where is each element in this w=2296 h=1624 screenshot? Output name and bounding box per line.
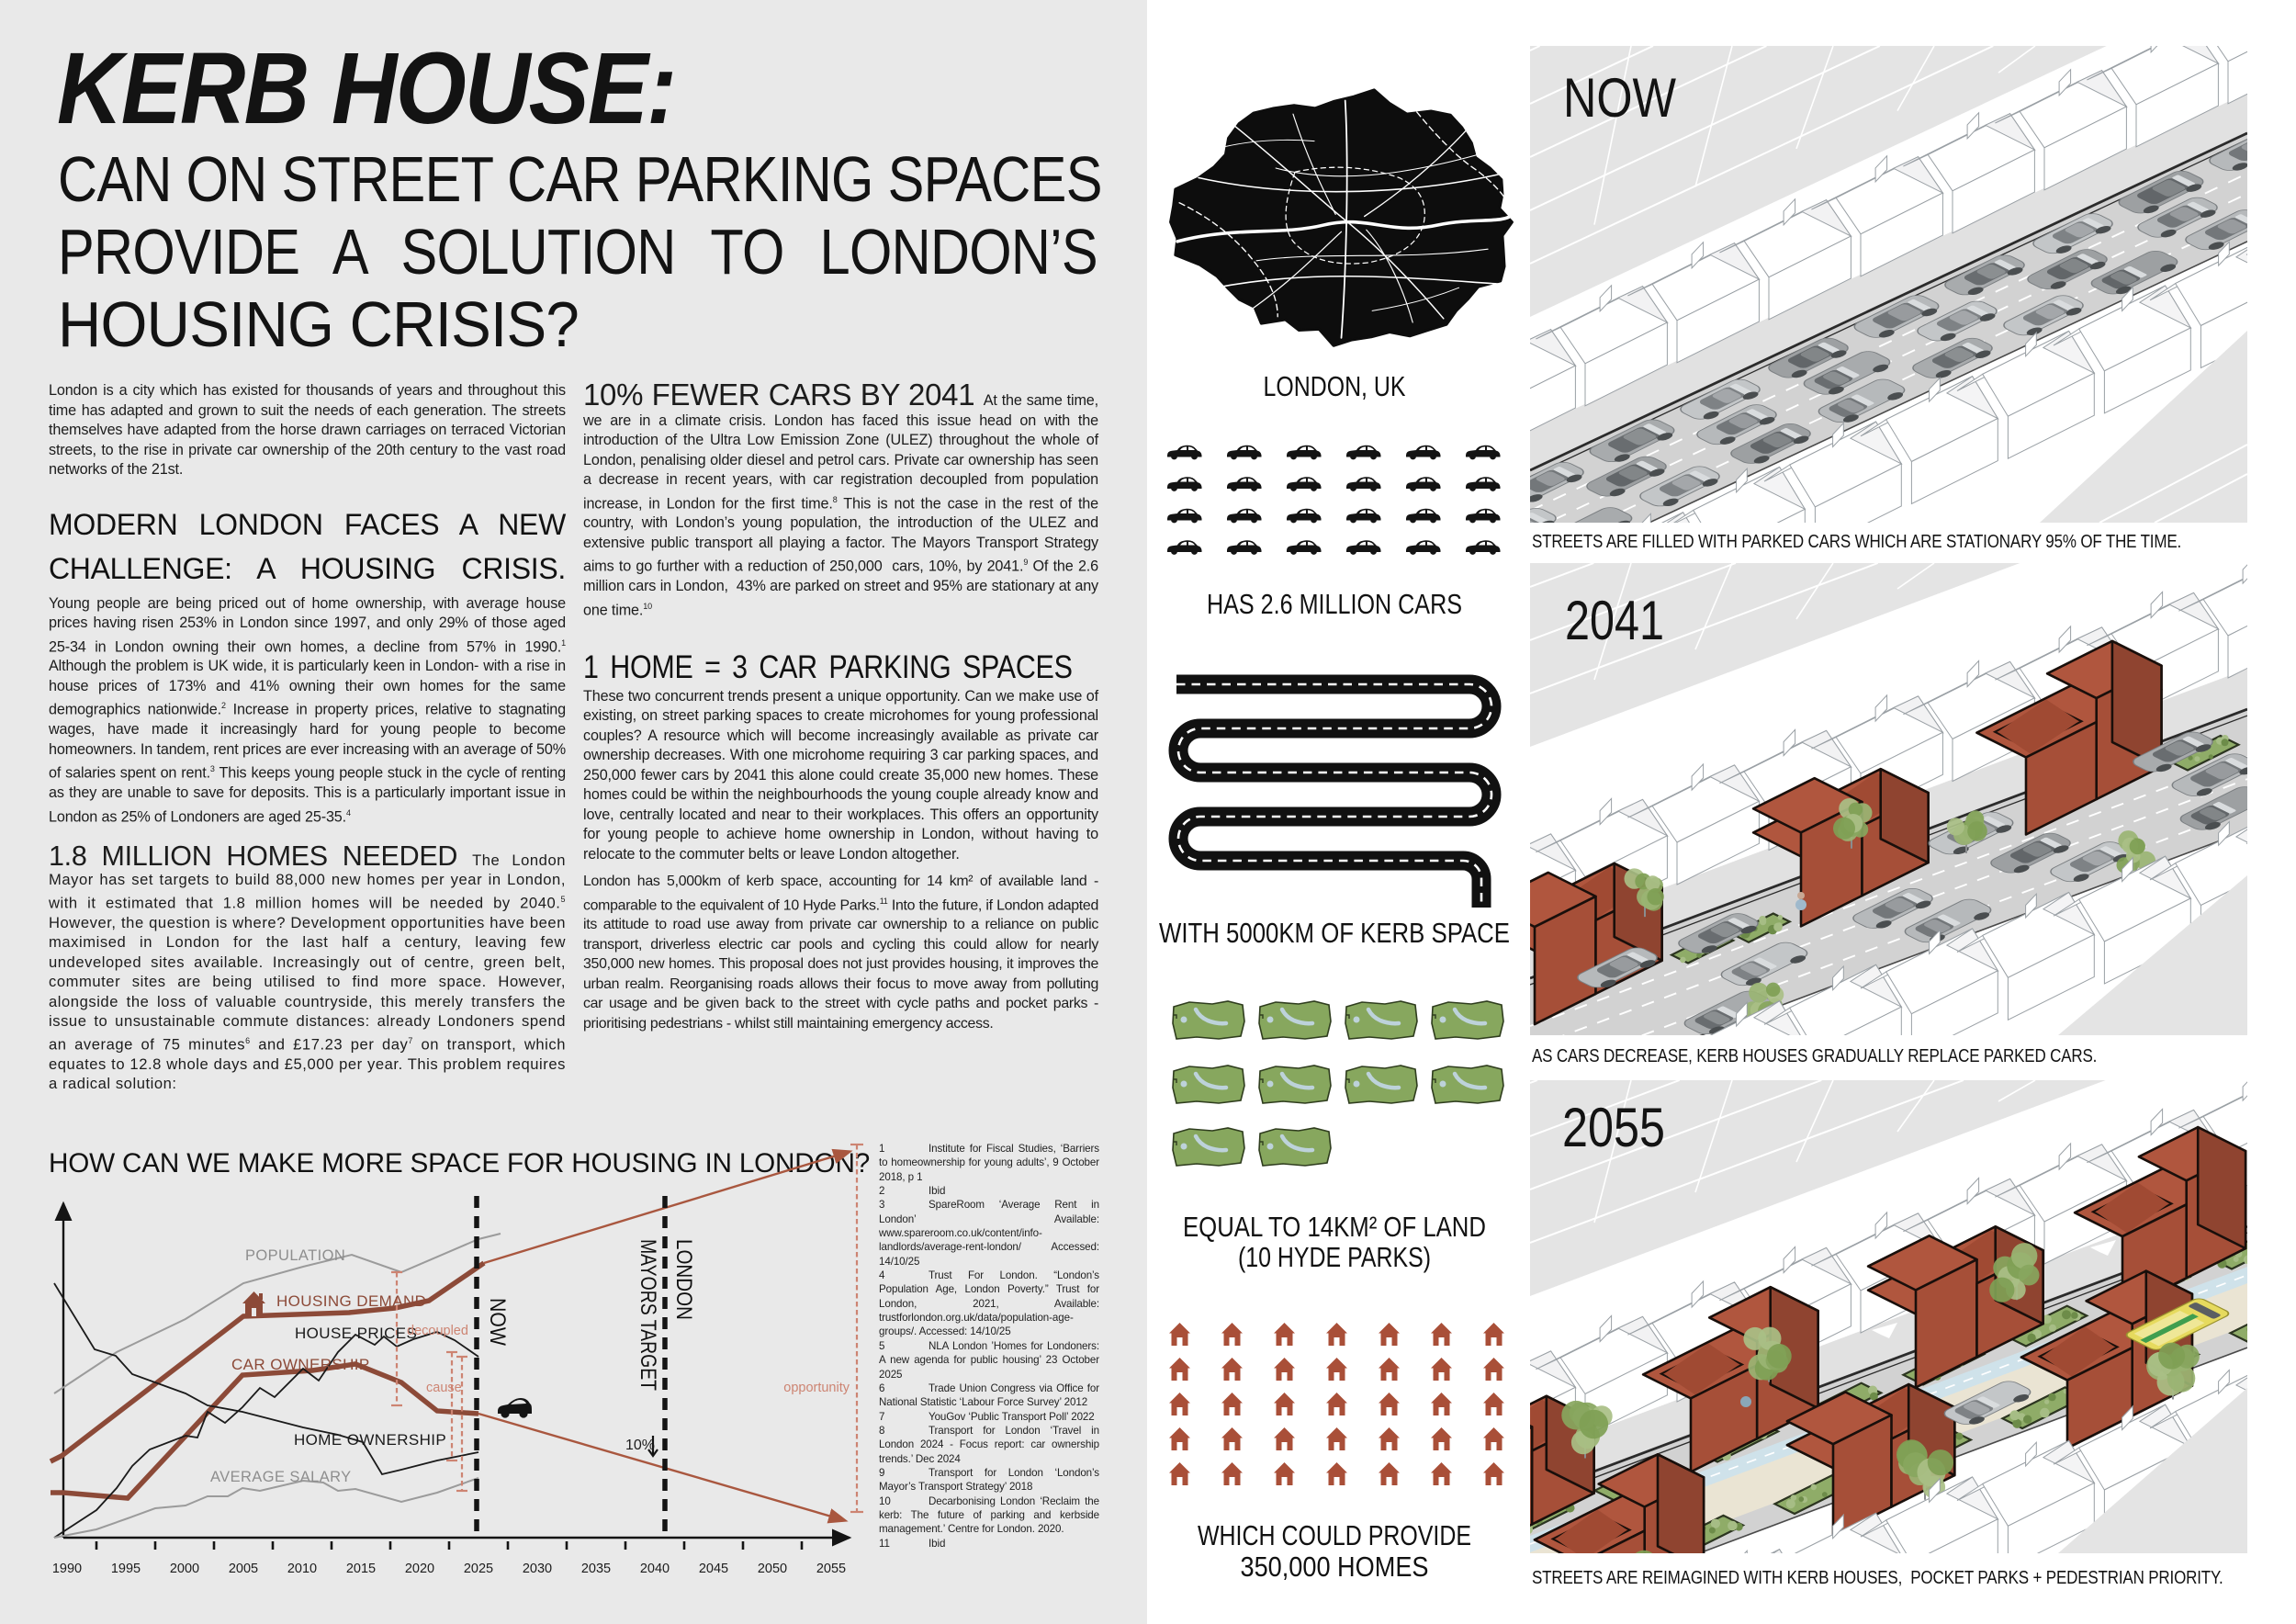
svg-text:2005: 2005 — [229, 1562, 258, 1576]
svg-text:LONDON: LONDON — [671, 1239, 696, 1320]
svg-text:HOUSING DEMAND: HOUSING DEMAND — [276, 1292, 426, 1310]
svg-text:2040: 2040 — [640, 1562, 670, 1576]
svg-text:2041: 2041 — [1565, 590, 1664, 651]
svg-text:POPULATION: POPULATION — [245, 1247, 345, 1264]
svg-text:2055: 2055 — [816, 1562, 846, 1576]
svg-text:2050: 2050 — [758, 1562, 787, 1576]
svg-text:HOME OWNERSHIP: HOME OWNERSHIP — [294, 1431, 446, 1449]
svg-text:decoupled: decoupled — [407, 1324, 468, 1338]
svg-text:HAS 2.6 MILLION CARS: HAS 2.6 MILLION CARS — [1207, 589, 1462, 620]
svg-text:1990: 1990 — [52, 1562, 82, 1576]
svg-text:cause: cause — [426, 1381, 462, 1395]
svg-text:2055: 2055 — [1562, 1097, 1665, 1158]
svg-text:350,000 HOMES: 350,000 HOMES — [1241, 1551, 1429, 1583]
svg-text:LONDON, UK: LONDON, UK — [1264, 371, 1406, 402]
svg-text:MAYORS TARGET: MAYORS TARGET — [636, 1239, 660, 1391]
svg-text:WITH 5000KM OF KERB SPACE: WITH 5000KM OF KERB SPACE — [1159, 918, 1510, 949]
svg-text:opportunity: opportunity — [783, 1381, 850, 1395]
svg-text:1995: 1995 — [111, 1562, 141, 1576]
svg-text:2035: 2035 — [581, 1562, 611, 1576]
svg-text:2045: 2045 — [699, 1562, 728, 1576]
svg-text:2030: 2030 — [523, 1562, 552, 1576]
svg-text:HOUSE PRICES: HOUSE PRICES — [295, 1325, 417, 1342]
svg-text:WHICH COULD PROVIDE: WHICH COULD PROVIDE — [1198, 1520, 1471, 1551]
svg-text:2020: 2020 — [405, 1562, 434, 1576]
svg-text:CAR OWNERSHIP: CAR OWNERSHIP — [231, 1356, 370, 1373]
svg-text:2025: 2025 — [464, 1562, 493, 1576]
svg-text:EQUAL TO 14KM² OF LAND: EQUAL TO 14KM² OF LAND — [1183, 1212, 1486, 1243]
svg-text:2000: 2000 — [170, 1562, 199, 1576]
svg-text:NOW: NOW — [1563, 67, 1676, 129]
svg-text:AVERAGE SALARY: AVERAGE SALARY — [210, 1469, 352, 1485]
svg-text:2010: 2010 — [287, 1562, 317, 1576]
svg-text:NOW: NOW — [485, 1298, 510, 1347]
svg-text:2015: 2015 — [346, 1562, 376, 1576]
svg-text:(10 HYDE PARKS): (10 HYDE PARKS) — [1238, 1242, 1431, 1273]
